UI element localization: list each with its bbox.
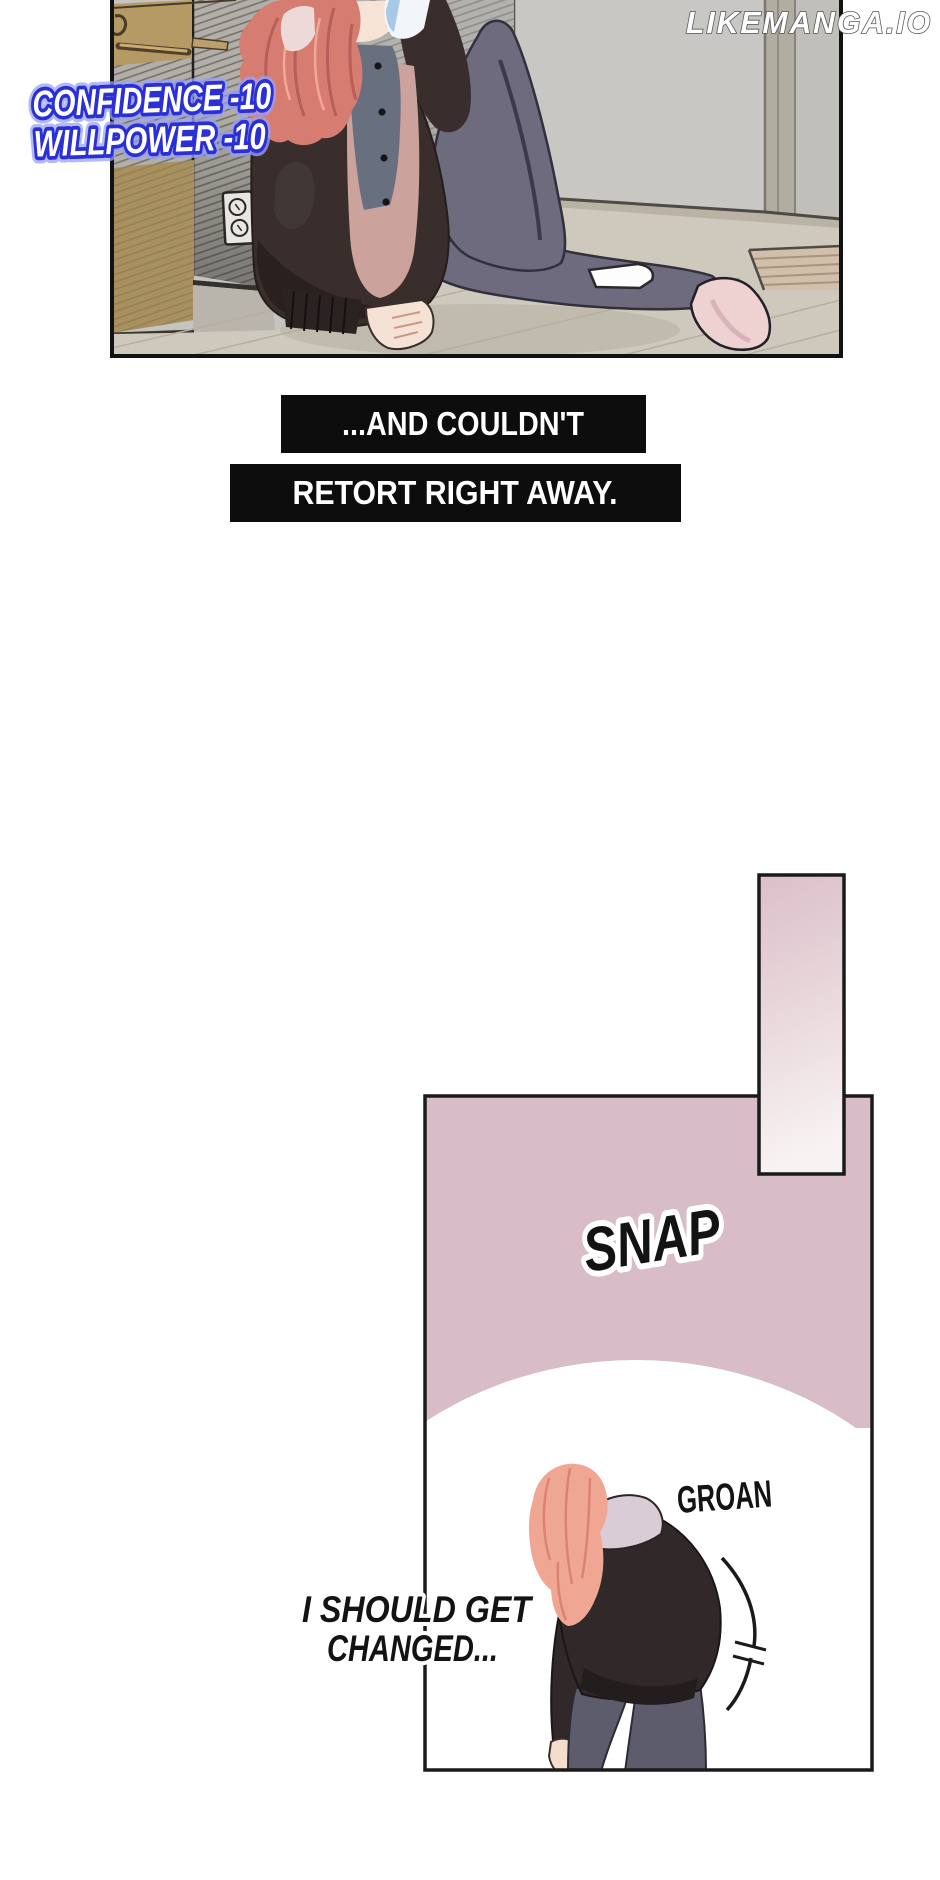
svg-text:I SHOULD GET: I SHOULD GET <box>302 1589 534 1630</box>
svg-text:RETORT RIGHT AWAY.: RETORT RIGHT AWAY. <box>293 474 618 511</box>
svg-text:WILLPOWER -10: WILLPOWER -10 <box>33 116 267 165</box>
svg-text:GROAN: GROAN <box>676 1473 774 1522</box>
svg-text:...AND COULDN'T: ...AND COULDN'T <box>342 405 584 442</box>
svg-text:CHANGED...: CHANGED... <box>327 1628 498 1669</box>
svg-text:LIKEMANGA.IO: LIKEMANGA.IO <box>686 5 932 40</box>
